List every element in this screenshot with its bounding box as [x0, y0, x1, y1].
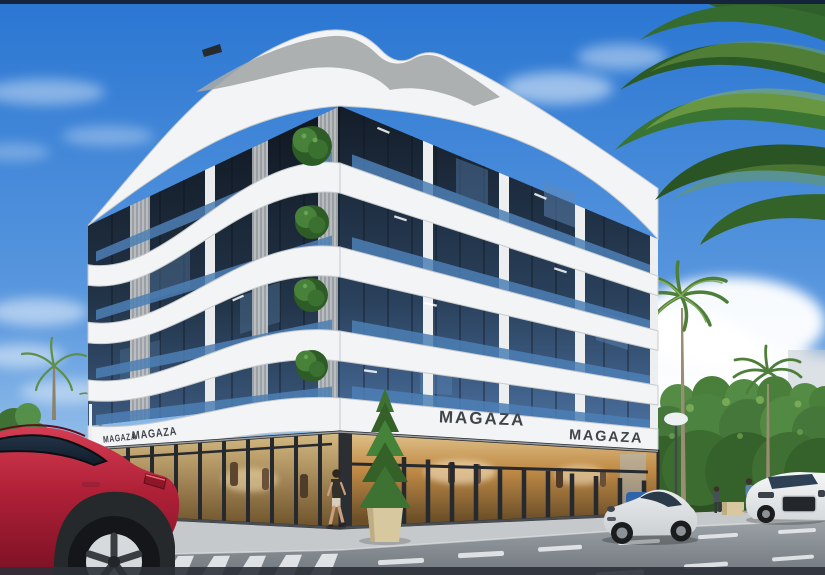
top-edge: [0, 0, 825, 4]
sedan-grille: [782, 496, 816, 512]
scene-svg: MAGAZA MAGAZA MAGAZA MAGAZA: [0, 0, 825, 575]
shrub-3: [294, 278, 328, 312]
architectural-render: MAGAZA MAGAZA MAGAZA MAGAZA: [0, 0, 825, 575]
shrub-1: [292, 126, 332, 166]
door-handle: [82, 482, 100, 487]
bottom-edge: [0, 567, 825, 575]
sign-magaza-right-front: MAGAZA: [439, 407, 526, 429]
headlight: [607, 506, 615, 512]
shrub-2: [295, 205, 329, 239]
planter-2: [722, 502, 744, 515]
